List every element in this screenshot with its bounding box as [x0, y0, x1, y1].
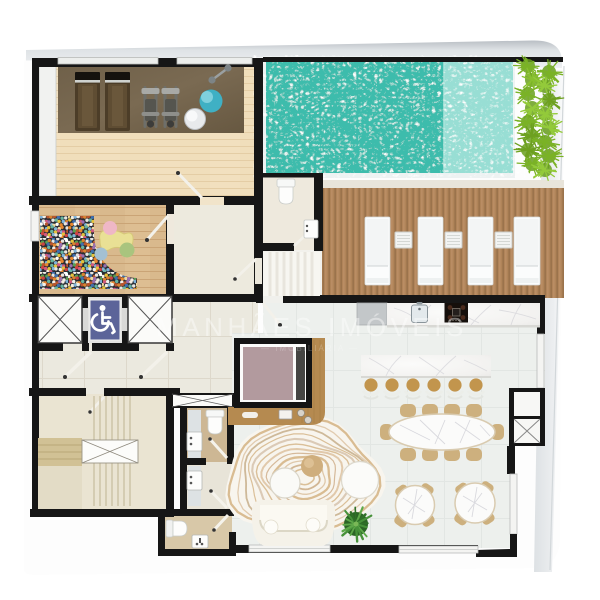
svg-text:— IMOBILIÁRIA —: — IMOBILIÁRIA —	[261, 344, 359, 353]
svg-text:MANHÃES IMÓVEIS: MANHÃES IMÓVEIS	[156, 312, 468, 342]
